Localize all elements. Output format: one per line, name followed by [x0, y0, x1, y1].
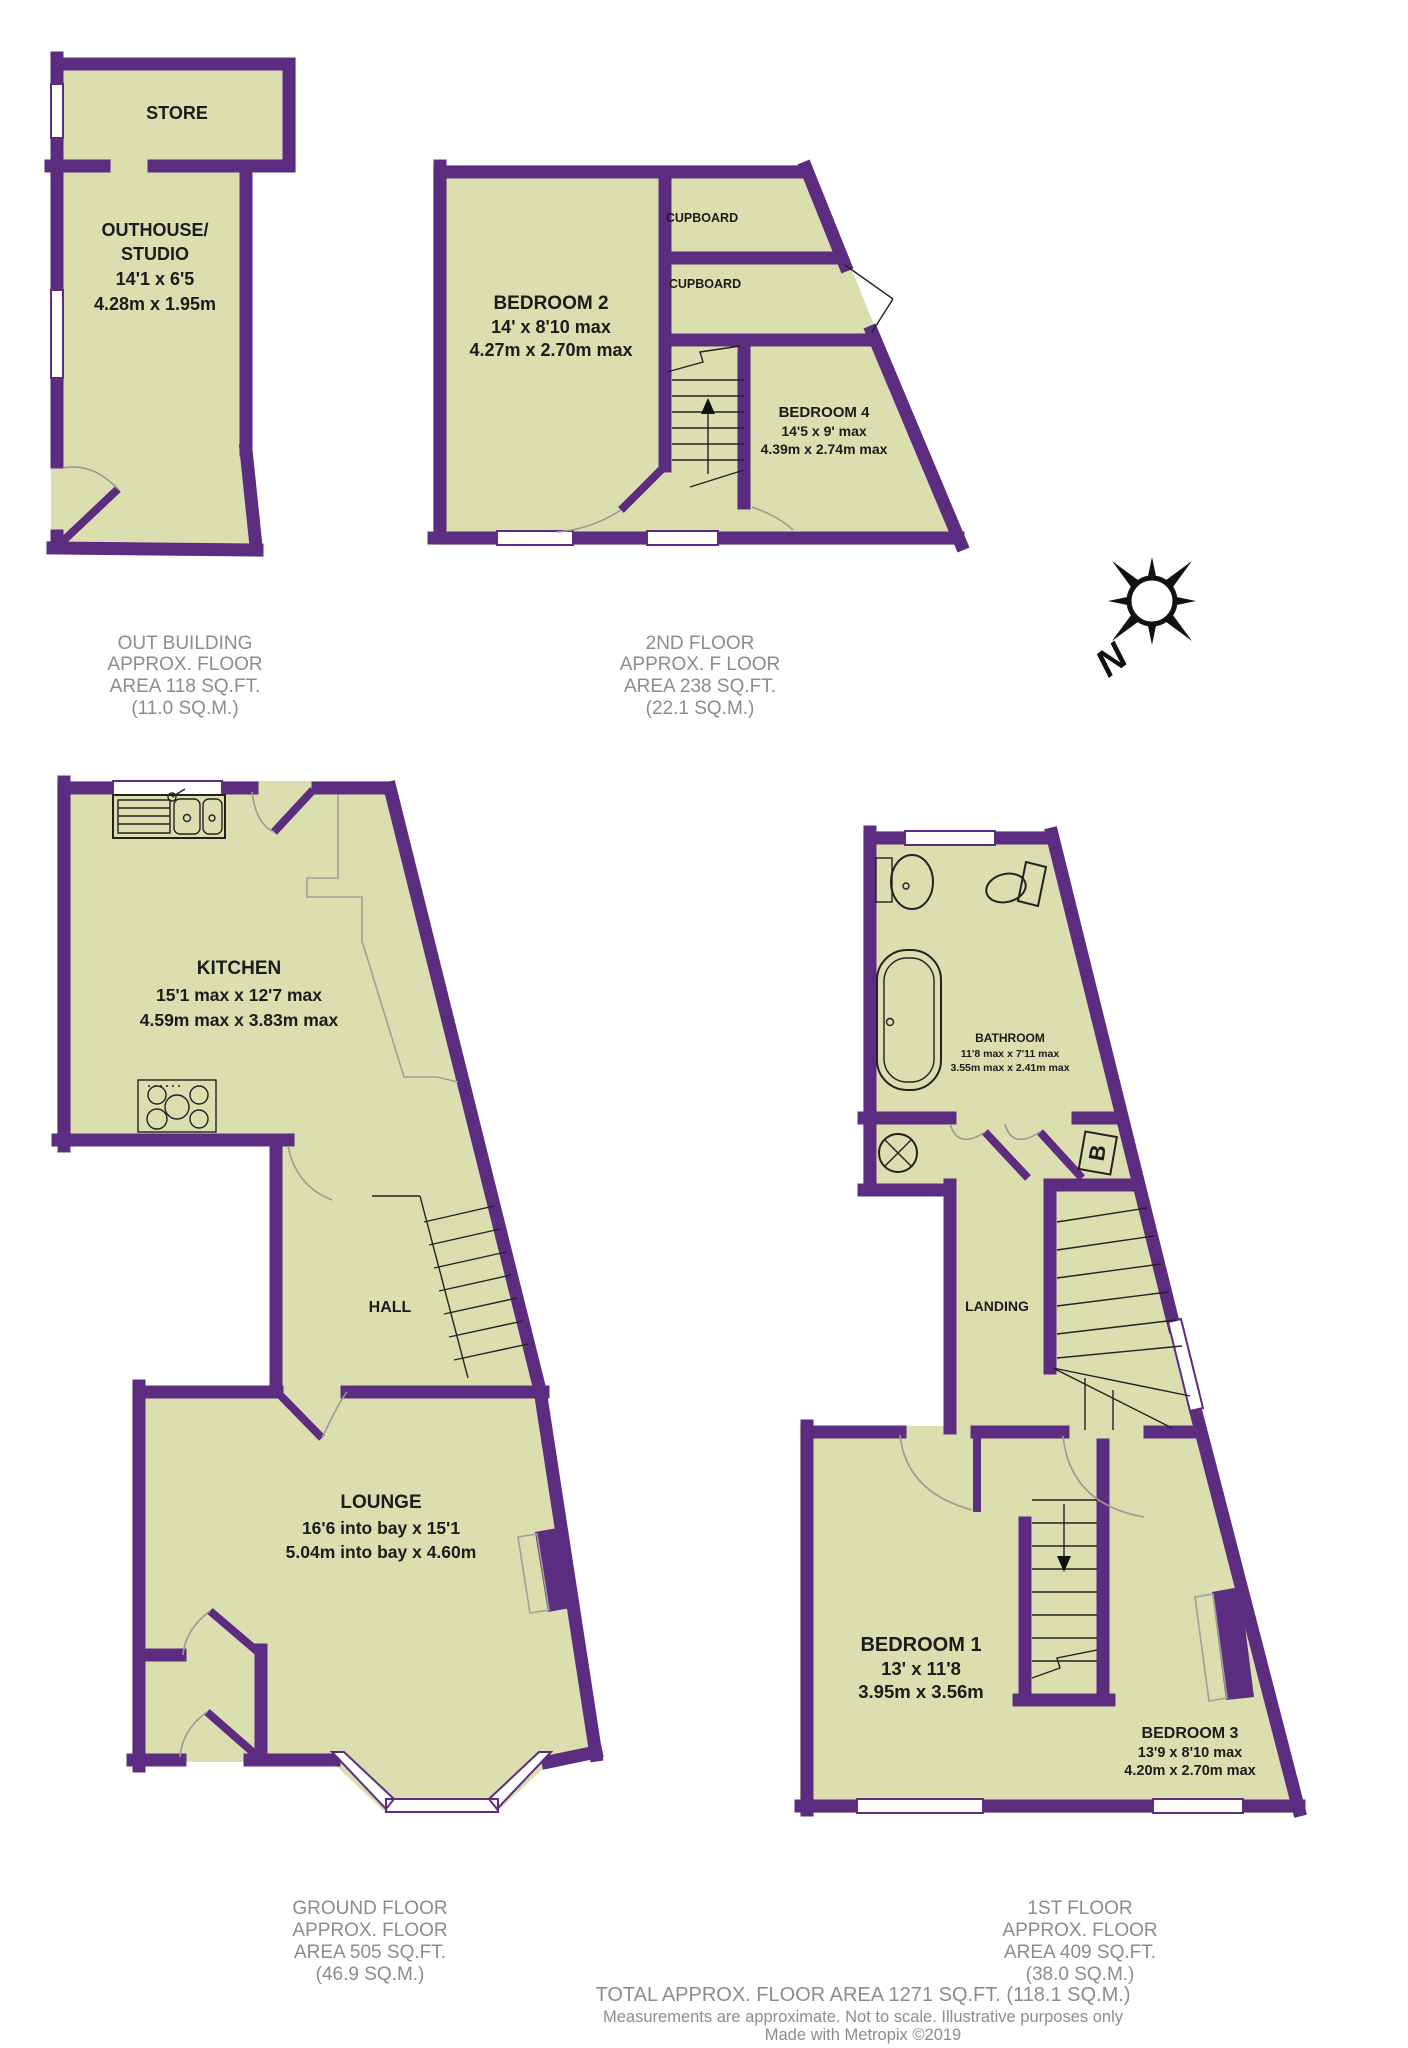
bathroom-label-dims-m: 3.55m max x 2.41m max: [950, 1062, 1069, 1074]
first-floor-plan: B BATHROOM 11'8 max x 7'11 max 3.55m max…: [800, 831, 1300, 1813]
second-floor-caption-3: AREA 238 SQ.FT.: [624, 676, 776, 697]
floorplan-canvas: STORE OUTHOUSE/ STUDIO 14'1 x 6'5 4.28m …: [0, 0, 1408, 2048]
compass-rose: N: [1088, 557, 1196, 685]
first-floor-caption-3: AREA 409 SQ.FT.: [1004, 1942, 1156, 1963]
ground-floor-caption-1: GROUND FLOOR: [292, 1898, 447, 1919]
lounge-label-dims-ft: 16'6 into bay x 15'1: [302, 1518, 460, 1538]
outhouse-label-name1: OUTHOUSE/: [101, 220, 208, 240]
compass-ring: [1129, 578, 1175, 624]
bedroom2-label-name: BEDROOM 2: [493, 293, 608, 314]
bedroom4-label-dims-m: 4.39m x 2.74m max: [761, 441, 888, 457]
kitchen-label-name: KITCHEN: [197, 958, 281, 979]
bedroom3-label-dims-m: 4.20m x 2.70m max: [1124, 1763, 1255, 1779]
outhouse-label-name2: STUDIO: [121, 244, 189, 264]
kitchen-label-dims-m: 4.59m max x 3.83m max: [140, 1010, 339, 1030]
cupboard-top-label: CUPBOARD: [666, 211, 738, 225]
disclaimer-text: Measurements are approximate. Not to sca…: [603, 2008, 1124, 2026]
outbuilding-caption-3: AREA 118 SQ.FT.: [110, 676, 261, 697]
landing-label: LANDING: [965, 1298, 1029, 1314]
bedroom4-label-name: BEDROOM 4: [779, 404, 871, 421]
second-floor-caption-1: 2ND FLOOR: [646, 633, 755, 654]
credit-text: Made with Metropix ©2019: [765, 2026, 962, 2044]
first-floor-caption-1: 1ST FLOOR: [1027, 1898, 1132, 1919]
first-floor-caption-4: (38.0 SQ.M.): [1026, 1964, 1135, 1985]
outbuilding-caption-4: (11.0 SQ.M.): [131, 698, 238, 719]
second-floor-caption-2: APPROX. F LOOR: [620, 654, 780, 675]
lounge-label-dims-m: 5.04m into bay x 4.60m: [286, 1542, 477, 1562]
outbuilding-plan: STORE OUTHOUSE/ STUDIO 14'1 x 6'5 4.28m …: [51, 58, 296, 552]
floorplan-page: STORE OUTHOUSE/ STUDIO 14'1 x 6'5 4.28m …: [0, 0, 1408, 2048]
total-area-text: TOTAL APPROX. FLOOR AREA 1271 SQ.FT. (11…: [596, 1984, 1131, 2006]
store-label: STORE: [146, 103, 208, 123]
cupboard-mid-label: CUPBOARD: [669, 277, 741, 291]
ground-floor-caption-2: APPROX. FLOOR: [292, 1920, 447, 1941]
hall-label: HALL: [369, 1299, 412, 1316]
bedroom2-label-dims-m: 4.27m x 2.70m max: [469, 340, 632, 360]
ground-floor-caption-4: (46.9 SQ.M.): [316, 1964, 425, 1985]
outbuilding-caption-1: OUT BUILDING: [118, 633, 253, 654]
first-floor-caption-2: APPROX. FLOOR: [1002, 1920, 1157, 1941]
second-floor-plan: CUPBOARD CUPBOARD BEDROOM 2 14' x 8'10 m…: [433, 165, 962, 545]
ground-floor-window-top: [113, 781, 222, 795]
bathroom-label-name: BATHROOM: [975, 1031, 1045, 1045]
outhouse-label-dims-m: 4.28m x 1.95m: [94, 294, 216, 314]
bedroom3-label-name: BEDROOM 3: [1142, 1725, 1239, 1742]
bathroom-label-dims-ft: 11'8 max x 7'11 max: [961, 1048, 1060, 1060]
ground-floor-caption-3: AREA 505 SQ.FT.: [294, 1942, 446, 1963]
footer: TOTAL APPROX. FLOOR AREA 1271 SQ.FT. (11…: [596, 1984, 1131, 2044]
second-floor-caption-4: (22.1 SQ.M.): [646, 698, 755, 719]
bedroom1-label-dims-m: 3.95m x 3.56m: [858, 1681, 983, 1702]
bedroom4-label-dims-ft: 14'5 x 9' max: [781, 423, 866, 439]
bedroom1-label-name: BEDROOM 1: [860, 1634, 981, 1656]
bedroom2-label-dims-ft: 14' x 8'10 max: [491, 317, 611, 337]
outhouse-label-dims-ft: 14'1 x 6'5: [116, 269, 195, 289]
kitchen-label-dims-ft: 15'1 max x 12'7 max: [156, 985, 322, 1005]
bedroom3-label-dims-ft: 13'9 x 8'10 max: [1138, 1745, 1242, 1761]
compass-north-label: N: [1088, 634, 1137, 685]
ground-floor-plan: KITCHEN 15'1 max x 12'7 max 4.59m max x …: [57, 781, 596, 1812]
bedroom1-label-dims-ft: 13' x 11'8: [881, 1658, 961, 1679]
lounge-label-name: LOUNGE: [340, 1492, 421, 1513]
outbuilding-caption-2: APPROX. FLOOR: [107, 654, 262, 675]
